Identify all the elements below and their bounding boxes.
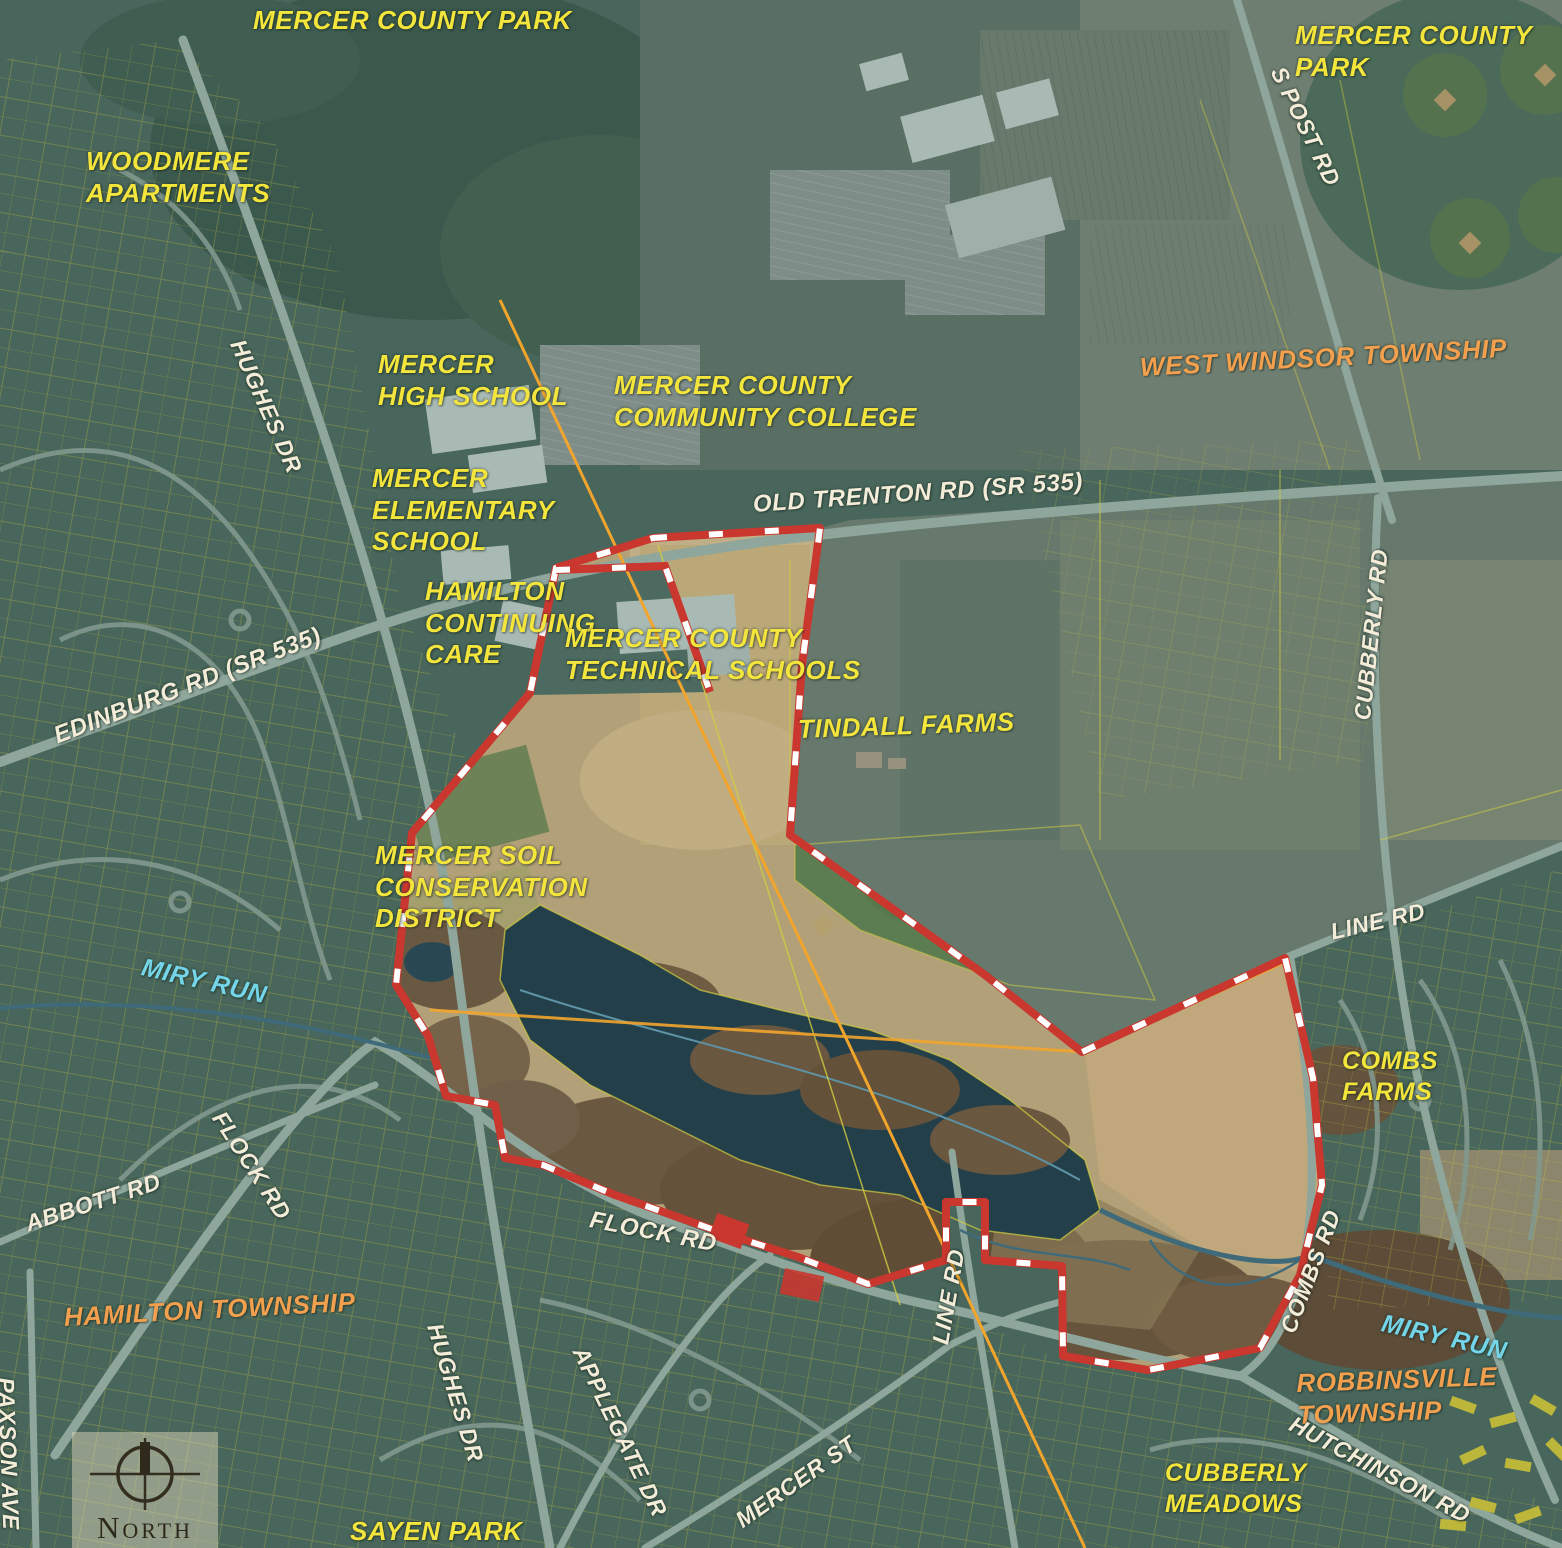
north-arrow-icon: [72, 1432, 218, 1512]
aerial-map: MERCER COUNTY PARK MERCER COUNTY PARK WO…: [0, 0, 1562, 1548]
north-label: NORTH: [72, 1510, 218, 1546]
north-compass: NORTH: [72, 1432, 218, 1548]
aerial-basemap: [0, 0, 1562, 1548]
